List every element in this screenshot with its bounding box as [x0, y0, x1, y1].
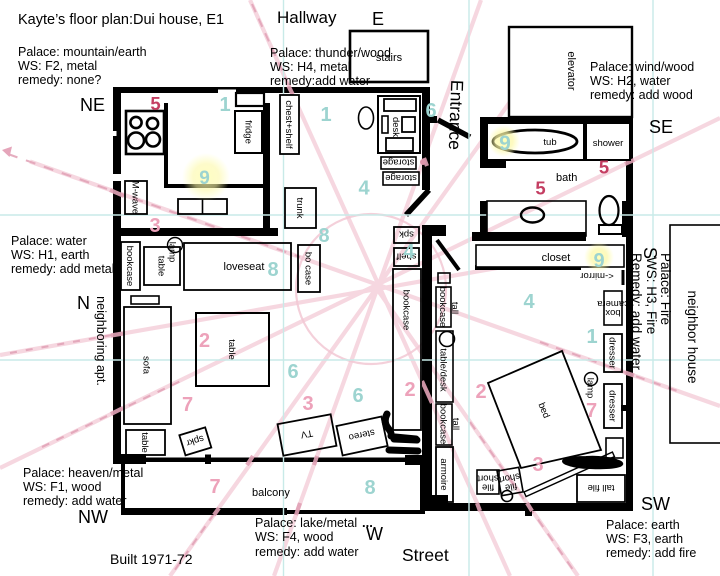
svg-text:bo case: bo case: [303, 252, 314, 285]
svg-text:Palace: mountain/earth: Palace: mountain/earth: [18, 45, 147, 59]
svg-text:elevator: elevator: [565, 51, 577, 90]
svg-text:6: 6: [352, 385, 363, 407]
svg-text:1: 1: [219, 94, 230, 116]
svg-text:2: 2: [404, 379, 415, 401]
svg-text:Remedy: add water: Remedy: add water: [629, 253, 644, 371]
svg-text:WS: H1, earth: WS: H1, earth: [11, 248, 90, 262]
svg-text:Kayte’s floor plan:Dui house,: Kayte’s floor plan:Dui house, E1: [18, 12, 224, 28]
svg-text:remedy: add fire: remedy: add fire: [606, 546, 696, 560]
svg-text:SW: SW: [641, 494, 670, 514]
svg-text:9: 9: [199, 168, 210, 189]
svg-text:lamp: lamp: [585, 378, 596, 399]
svg-text:3: 3: [532, 454, 543, 476]
svg-text:shower: shower: [593, 138, 624, 149]
svg-text:storage: storage: [383, 157, 415, 168]
svg-text:WS: F3, earth: WS: F3, earth: [606, 532, 683, 546]
svg-text:7: 7: [209, 476, 220, 498]
svg-text:tall: tall: [450, 418, 461, 430]
svg-text:spk: spk: [399, 229, 414, 240]
svg-text:Hallway: Hallway: [277, 8, 337, 27]
svg-text:8: 8: [364, 477, 375, 499]
svg-text:WS: H4, metal: WS: H4, metal: [270, 60, 351, 74]
svg-text:7: 7: [182, 394, 193, 416]
svg-text:NW: NW: [78, 507, 108, 527]
svg-text:Palace: thunder/wood: Palace: thunder/wood: [270, 46, 391, 60]
svg-text:lamp: lamp: [167, 242, 178, 263]
svg-text:tub: tub: [543, 137, 556, 148]
svg-text:remedy: add metal: remedy: add metal: [11, 262, 115, 276]
svg-text:Palace: water: Palace: water: [11, 234, 87, 248]
svg-text:Palace: wind/wood: Palace: wind/wood: [590, 60, 694, 74]
svg-text:dresser: dresser: [607, 337, 618, 369]
svg-text:box: box: [605, 307, 621, 318]
svg-text:8: 8: [267, 259, 278, 281]
svg-text:Built 1971-72: Built 1971-72: [110, 551, 193, 567]
svg-text:storage: storage: [385, 172, 417, 183]
svg-text:closet: closet: [542, 252, 571, 264]
svg-text:neighboring apt.: neighboring apt.: [94, 296, 108, 386]
svg-text:armoire: armoire: [438, 458, 449, 490]
svg-text:remedy: none?: remedy: none?: [18, 73, 101, 87]
svg-text:trunk: trunk: [294, 197, 305, 218]
svg-text:SE: SE: [649, 117, 673, 137]
svg-text:tall: tall: [449, 302, 460, 314]
svg-text:E: E: [372, 9, 384, 29]
svg-text:4: 4: [523, 291, 535, 313]
svg-text:Palace: heaven/metal: Palace: heaven/metal: [23, 466, 143, 480]
svg-text:neighbor house: neighbor house: [685, 290, 700, 383]
svg-text:balcony: balcony: [252, 487, 290, 499]
svg-text:Palace: earth: Palace: earth: [606, 518, 680, 532]
svg-text:tall file: tall file: [588, 482, 615, 493]
svg-text:dresser: dresser: [607, 390, 618, 422]
svg-text:remedy: add water: remedy: add water: [23, 494, 127, 508]
svg-text:Palace: Fire: Palace: Fire: [658, 253, 673, 325]
svg-text:5: 5: [150, 93, 160, 114]
svg-text:chest+shelf: chest+shelf: [283, 100, 294, 149]
svg-text:M-wave: M-wave: [130, 181, 141, 214]
svg-text:Palace: lake/metal: Palace: lake/metal: [255, 516, 357, 530]
svg-text:table/desk: table/desk: [438, 348, 449, 392]
svg-text:1: 1: [320, 104, 331, 126]
svg-text:8: 8: [318, 225, 329, 247]
svg-text:WS: F2, metal: WS: F2, metal: [18, 59, 97, 73]
svg-text:Entrance: Entrance: [445, 80, 467, 151]
svg-text:table: table: [139, 432, 150, 453]
svg-text:2: 2: [199, 330, 210, 352]
svg-text:WS: F4, wood: WS: F4, wood: [255, 530, 334, 544]
svg-text:1: 1: [586, 326, 597, 348]
svg-text:bookcase: bookcase: [438, 404, 449, 445]
svg-text:bookcase: bookcase: [437, 287, 448, 328]
svg-text:bookcase: bookcase: [124, 246, 135, 287]
svg-text:WS: H2, water: WS: H2, water: [590, 74, 671, 88]
svg-text:3: 3: [149, 215, 160, 237]
svg-text:NE: NE: [80, 95, 105, 115]
svg-text:5: 5: [599, 157, 609, 178]
svg-text:W: W: [366, 524, 383, 544]
svg-text:4: 4: [358, 178, 370, 200]
svg-text:remedy:add water: remedy:add water: [270, 74, 370, 88]
svg-text:WS: H3, Fire: WS: H3, Fire: [644, 257, 659, 334]
svg-text:3: 3: [302, 393, 313, 415]
svg-text:6: 6: [287, 361, 298, 383]
svg-text:9: 9: [499, 132, 511, 155]
svg-text:7: 7: [586, 400, 597, 422]
svg-text:4: 4: [403, 241, 415, 263]
svg-text:remedy: add water: remedy: add water: [255, 545, 359, 559]
svg-text:table: table: [156, 256, 167, 277]
svg-text:desk: desk: [390, 117, 401, 137]
svg-text:9: 9: [593, 250, 604, 272]
svg-text:bath: bath: [556, 172, 577, 184]
svg-text:file: file: [482, 482, 494, 493]
svg-text:WS: F1, wood: WS: F1, wood: [23, 480, 102, 494]
svg-text:bookcase: bookcase: [401, 290, 412, 331]
svg-text:remedy: add wood: remedy: add wood: [590, 88, 693, 102]
svg-text:N: N: [77, 293, 90, 313]
svg-text:6: 6: [425, 100, 436, 122]
svg-text:table: table: [226, 339, 237, 360]
svg-text:Street: Street: [402, 545, 449, 565]
svg-text:loveseat: loveseat: [224, 261, 265, 273]
svg-text:2: 2: [475, 381, 486, 403]
svg-text:5: 5: [535, 178, 545, 199]
svg-text:sofa: sofa: [141, 356, 152, 375]
svg-text:fridge: fridge: [243, 120, 254, 144]
